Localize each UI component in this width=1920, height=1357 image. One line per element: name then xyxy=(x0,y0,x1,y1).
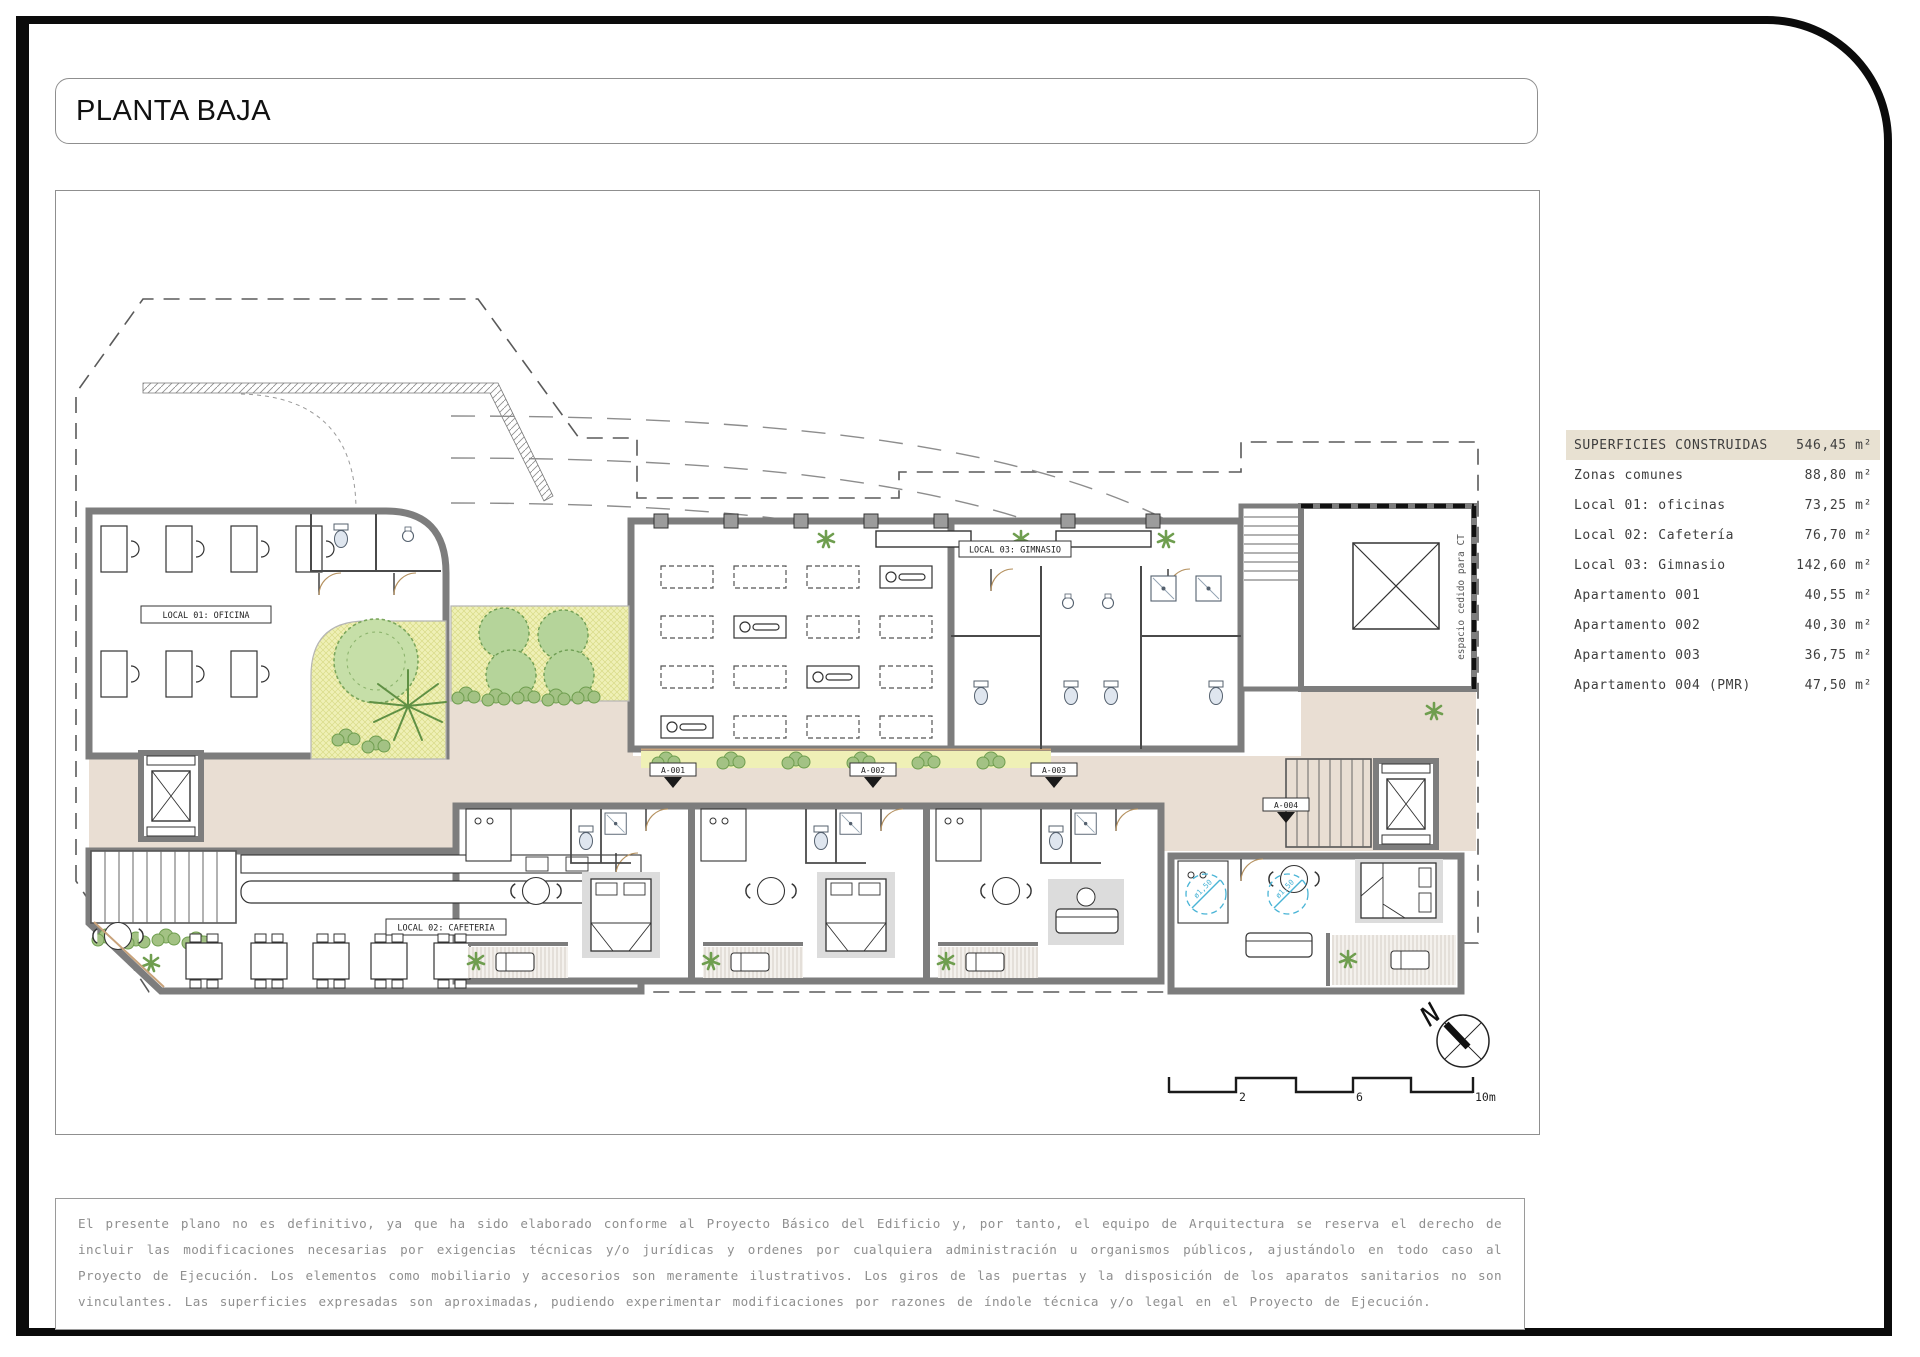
disclaimer-box: El presente plano no es definitivo, ya q… xyxy=(55,1198,1525,1330)
gym-bench-icon xyxy=(734,616,786,638)
areas-header-row: SUPERFICIES CONSTRUIDAS 546,45 m² xyxy=(1566,430,1880,460)
gym-bench-icon xyxy=(807,666,859,688)
gate-swing-arc xyxy=(241,394,356,511)
svg-text:2: 2 xyxy=(1239,1090,1246,1104)
svg-text:A-003: A-003 xyxy=(1042,766,1066,775)
svg-text:A-002: A-002 xyxy=(861,766,885,775)
title-box: PLANTA BAJA xyxy=(55,78,1538,144)
north-label: N xyxy=(1414,998,1448,1033)
areas-table: SUPERFICIES CONSTRUIDAS 546,45 m² Zonas … xyxy=(1566,430,1880,700)
row-value: 142,60 m² xyxy=(1796,558,1872,573)
row-label: Apartamento 004 (PMR) xyxy=(1574,678,1751,693)
row-label: Local 01: oficinas xyxy=(1574,498,1726,513)
svg-text:A-001: A-001 xyxy=(661,766,685,775)
gym-label: LOCAL 03: GIMNASIO xyxy=(969,546,1061,556)
row-label: Apartamento 002 xyxy=(1574,618,1700,633)
north-compass-icon: N xyxy=(1414,998,1489,1067)
elevator-icon xyxy=(1376,761,1436,847)
table-row: Local 03: Gimnasio 142,60 m² xyxy=(1566,550,1880,580)
table-row: Apartamento 002 40,30 m² xyxy=(1566,610,1880,640)
table-row: Apartamento 001 40,55 m² xyxy=(1566,580,1880,610)
row-value: 40,30 m² xyxy=(1805,618,1872,633)
office-label: LOCAL 01: OFICINA xyxy=(163,611,250,621)
row-value: 36,75 m² xyxy=(1805,648,1872,663)
gym-bench-icon xyxy=(880,566,932,588)
table-row: Local 01: oficinas 73,25 m² xyxy=(1566,490,1880,520)
shower-icon xyxy=(1151,576,1176,601)
shower-icon xyxy=(1196,576,1221,601)
svg-text:A-004: A-004 xyxy=(1274,801,1298,810)
row-label: Apartamento 001 xyxy=(1574,588,1700,603)
svg-text:10m: 10m xyxy=(1475,1090,1496,1104)
garden-patio-2 xyxy=(451,606,629,701)
floor-plan-box: LOCAL 01: OFICINA LOCAL 03: GIMNASIO xyxy=(55,190,1540,1135)
areas-header-value: 546,45 m² xyxy=(1796,438,1872,453)
toilet-icon xyxy=(1209,681,1223,705)
row-value: 88,80 m² xyxy=(1805,468,1872,483)
scale-bar: 2 6 10m xyxy=(1169,1077,1496,1104)
gym-bench-icon xyxy=(661,716,713,738)
ct-note: espacio cedido para CT xyxy=(1456,534,1467,660)
disclaimer-text: El presente plano no es definitivo, ya q… xyxy=(78,1211,1502,1315)
areas-header-label: SUPERFICIES CONSTRUIDAS xyxy=(1574,438,1768,453)
gym-room xyxy=(631,521,951,749)
hatched-band xyxy=(143,383,553,501)
toilet-icon xyxy=(974,681,988,705)
row-label: Local 02: Cafetería xyxy=(1574,528,1734,543)
table-row: Local 02: Cafetería 76,70 m² xyxy=(1566,520,1880,550)
floor-plan-svg: LOCAL 01: OFICINA LOCAL 03: GIMNASIO xyxy=(56,191,1541,1136)
row-value: 47,50 m² xyxy=(1805,678,1872,693)
row-value: 40,55 m² xyxy=(1805,588,1872,603)
toilet-icon xyxy=(1104,681,1118,705)
row-value: 76,70 m² xyxy=(1805,528,1872,543)
row-label: Local 03: Gimnasio xyxy=(1574,558,1726,573)
page-title: PLANTA BAJA xyxy=(56,95,271,128)
row-value: 73,25 m² xyxy=(1805,498,1872,513)
table-row: Zonas comunes 88,80 m² xyxy=(1566,460,1880,490)
table-row: Apartamento 003 36,75 m² xyxy=(1566,640,1880,670)
toilet-icon xyxy=(1064,681,1078,705)
row-label: Apartamento 003 xyxy=(1574,648,1700,663)
table-row: Apartamento 004 (PMR) 47,50 m² xyxy=(1566,670,1880,700)
stair-strip-room xyxy=(1241,506,1301,689)
cafeteria-label: LOCAL 02: CAFETERIA xyxy=(397,924,494,934)
elevator-icon xyxy=(141,753,201,839)
tree-icon xyxy=(334,619,418,703)
row-label: Zonas comunes xyxy=(1574,468,1684,483)
sheet: PLANTA BAJA xyxy=(0,0,1920,1357)
stairs-left xyxy=(91,851,236,923)
svg-text:6: 6 xyxy=(1356,1090,1363,1104)
